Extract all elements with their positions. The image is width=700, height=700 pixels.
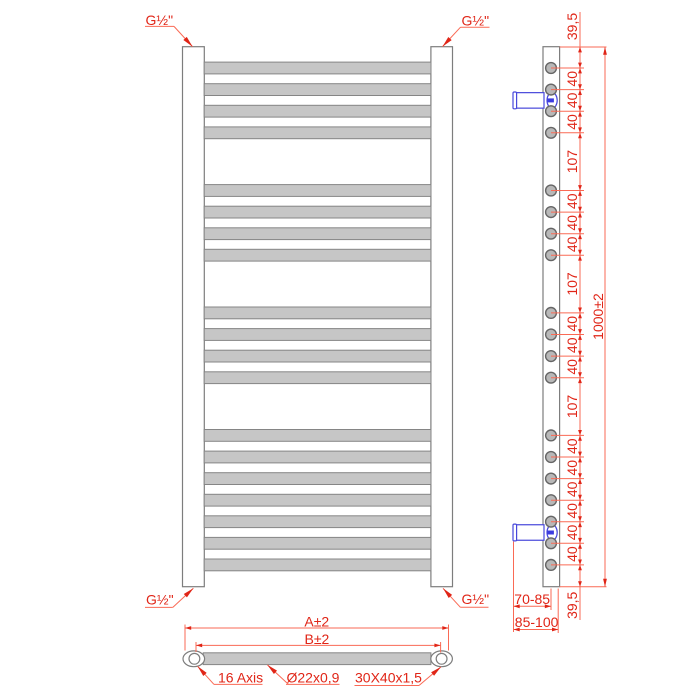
svg-text:G½": G½" [146, 591, 174, 607]
svg-text:40: 40 [564, 316, 580, 332]
svg-text:40: 40 [564, 92, 580, 108]
svg-text:40: 40 [564, 460, 580, 476]
svg-text:70-85: 70-85 [514, 591, 550, 607]
svg-text:40: 40 [564, 438, 580, 454]
svg-text:39,5: 39,5 [564, 13, 580, 40]
svg-text:40: 40 [564, 359, 580, 375]
svg-text:40: 40 [564, 525, 580, 541]
svg-text:Ø22x0,9: Ø22x0,9 [287, 669, 340, 685]
svg-text:A±2: A±2 [304, 614, 329, 630]
svg-text:30X40x1,5: 30X40x1,5 [355, 669, 422, 685]
svg-text:40: 40 [564, 114, 580, 130]
svg-text:G½": G½" [146, 12, 174, 28]
svg-text:40: 40 [564, 503, 580, 519]
svg-text:G½": G½" [462, 13, 490, 29]
svg-text:107: 107 [564, 150, 580, 174]
svg-text:40: 40 [564, 337, 580, 353]
svg-text:107: 107 [564, 272, 580, 296]
svg-text:39,5: 39,5 [564, 591, 580, 618]
svg-text:1000±2: 1000±2 [590, 293, 606, 340]
svg-text:B±2: B±2 [304, 631, 329, 647]
svg-text:107: 107 [564, 395, 580, 419]
svg-text:85-100: 85-100 [515, 614, 559, 630]
svg-text:G½": G½" [462, 591, 490, 607]
svg-text:40: 40 [564, 546, 580, 562]
svg-text:40: 40 [564, 193, 580, 209]
svg-text:16 Axis: 16 Axis [218, 669, 263, 685]
svg-text:40: 40 [564, 236, 580, 252]
svg-text:40: 40 [564, 71, 580, 87]
svg-text:40: 40 [564, 215, 580, 231]
svg-text:40: 40 [564, 481, 580, 497]
